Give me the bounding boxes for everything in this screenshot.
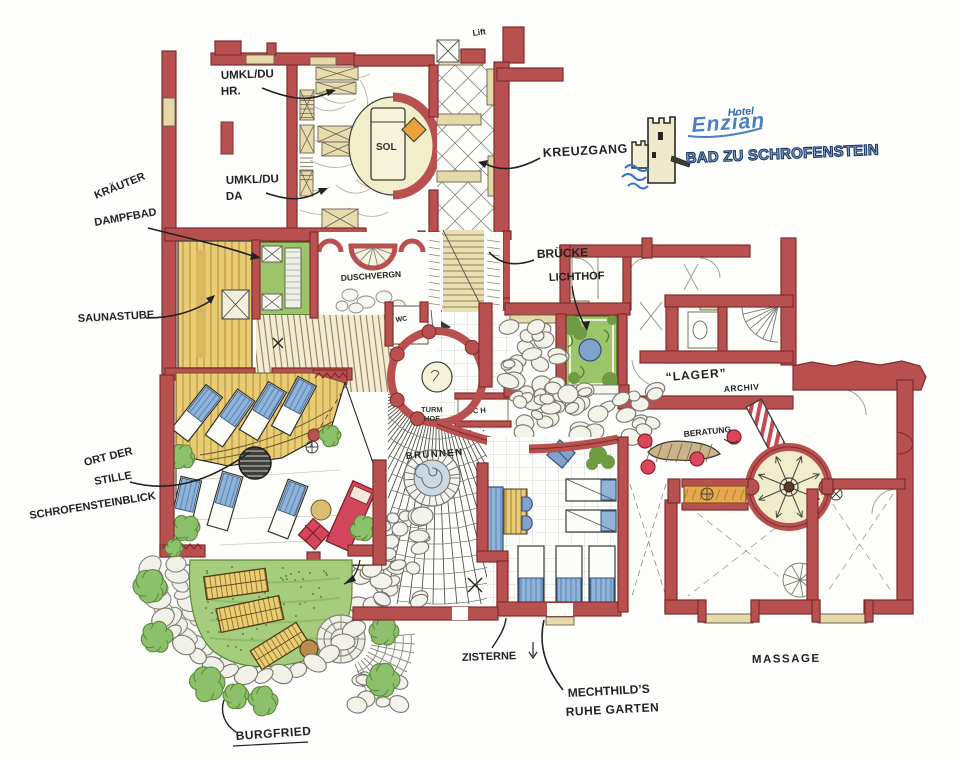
- svg-text:MASSAGE: MASSAGE: [752, 653, 821, 666]
- svg-text:SOL: SOL: [376, 142, 397, 153]
- svg-text:UMKL/DU: UMKL/DU: [226, 173, 279, 187]
- svg-text:Lift: Lift: [472, 26, 487, 38]
- svg-text:ZISTERNE: ZISTERNE: [462, 650, 517, 664]
- svg-text:BRÜCKE: BRÜCKE: [537, 244, 589, 261]
- svg-text:TURM: TURM: [421, 405, 443, 414]
- svg-text:DA: DA: [226, 190, 243, 203]
- svg-text:UMKL/DU: UMKL/DU: [221, 68, 274, 82]
- svg-text:LICHTHOF: LICHTHOF: [549, 270, 605, 284]
- svg-text:HR.: HR.: [221, 85, 241, 98]
- svg-text:HOF: HOF: [424, 414, 440, 423]
